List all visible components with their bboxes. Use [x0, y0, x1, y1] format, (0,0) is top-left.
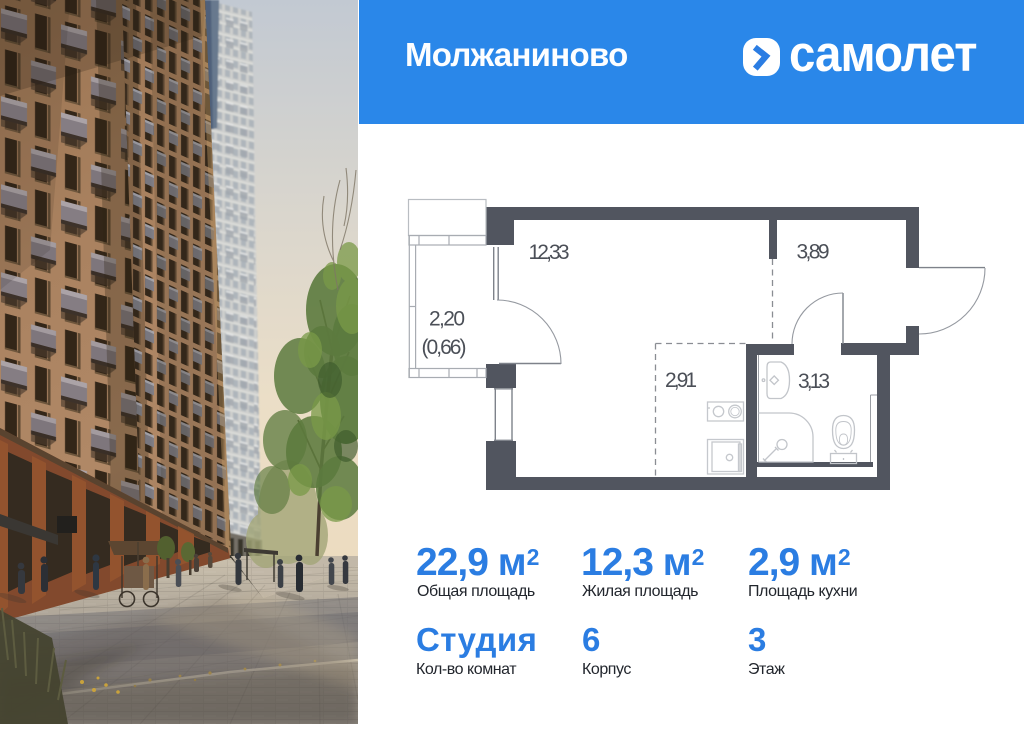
- svg-text:3,89: 3,89: [797, 241, 830, 264]
- svg-text:2,91: 2,91: [665, 369, 697, 392]
- svg-text:2,20: 2,20: [429, 308, 465, 331]
- svg-text:12,33: 12,33: [529, 241, 570, 264]
- svg-text:(0,66): (0,66): [422, 336, 467, 359]
- svg-text:3,13: 3,13: [798, 370, 830, 393]
